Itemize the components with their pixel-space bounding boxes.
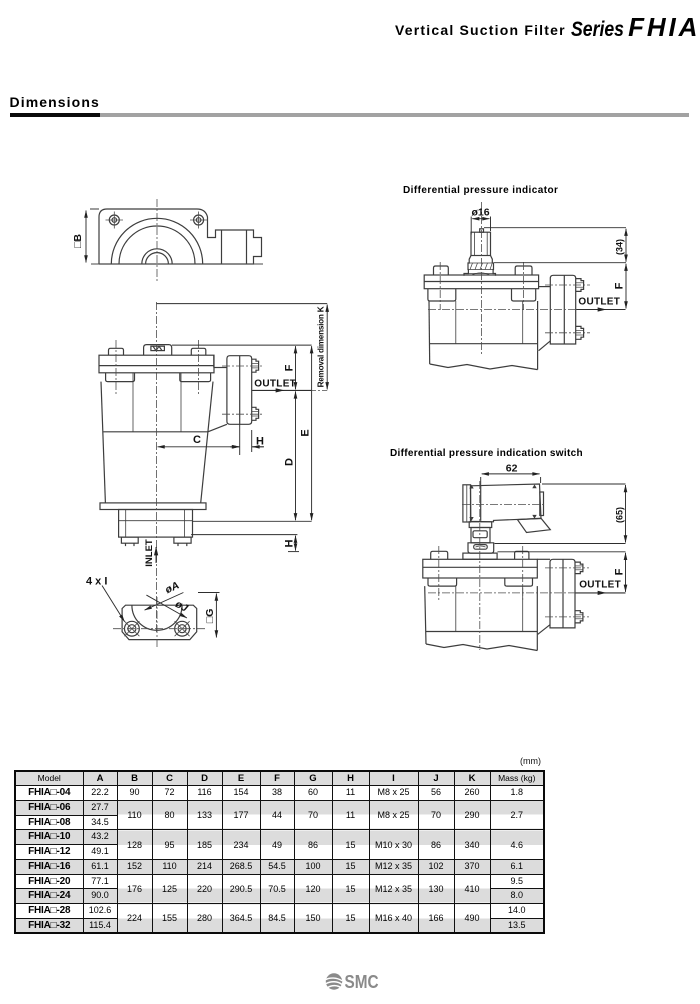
svg-text:E: E: [300, 429, 312, 436]
svg-text:OUTLET: OUTLET: [254, 379, 296, 390]
svg-text:H: H: [256, 436, 264, 448]
svg-text:□G: □G: [204, 609, 216, 624]
svg-text:(65): (65): [615, 507, 625, 523]
svg-text:H: H: [284, 539, 296, 547]
svg-text:(34): (34): [615, 239, 625, 255]
svg-text:OUTLET: OUTLET: [578, 297, 620, 308]
svg-text:F: F: [614, 568, 626, 575]
svg-text:OUTLET: OUTLET: [579, 580, 621, 591]
svg-text:ø16: ø16: [472, 207, 490, 219]
svg-text:62: 62: [506, 463, 518, 475]
svg-text:INLET: INLET: [144, 539, 155, 567]
svg-text:SMC: SMC: [345, 972, 379, 992]
svg-text:øA: øA: [163, 579, 181, 596]
svg-text:F: F: [614, 282, 626, 289]
svg-text:Removal dimension K: Removal dimension K: [316, 306, 325, 387]
svg-text:D: D: [284, 458, 296, 466]
svg-text:4 x I: 4 x I: [86, 576, 107, 588]
svg-text:øJ: øJ: [173, 598, 191, 615]
svg-text:F: F: [284, 364, 296, 371]
svg-text:C: C: [193, 434, 201, 446]
svg-text:□B: □B: [72, 234, 84, 248]
